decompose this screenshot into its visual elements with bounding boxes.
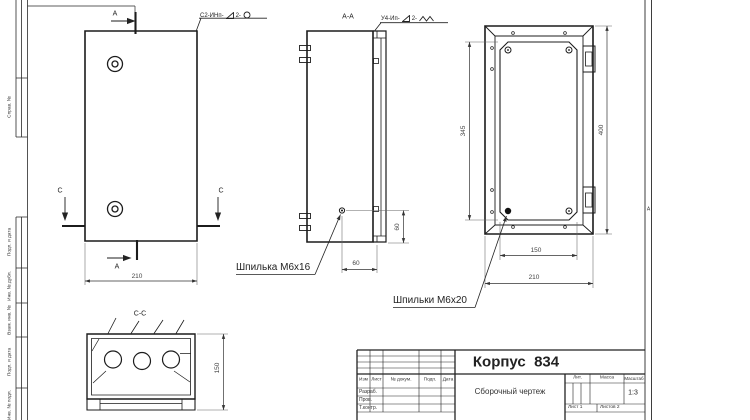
title-block-header-data: Дата <box>443 379 454 384</box>
dim-aa-offset-v-60: 60 <box>394 223 401 230</box>
weld-note-1: С2-ИНп- 2- <box>200 11 251 19</box>
weld-note-2-num: 2- <box>412 16 417 22</box>
section-arrow-lines <box>65 21 218 258</box>
front-view-holes <box>108 57 123 217</box>
section-mark-c-right: С <box>218 187 223 194</box>
title-block-mass-label: Масса <box>600 376 614 381</box>
frame-zone-letter: А <box>647 207 650 212</box>
section-cc-view <box>87 318 228 410</box>
front-view <box>62 12 221 285</box>
frame-holes <box>491 32 567 229</box>
annotation-studs-m6x20: Шпильки М6х20 <box>393 296 467 306</box>
section-mark-a-bottom: А <box>115 263 120 270</box>
margin-label-inv-dubl: Инв. № дубл. <box>8 271 13 301</box>
title-block-scale-value: 1:3 <box>628 390 638 397</box>
weld-note-1-text: С2-ИНп- <box>200 13 224 19</box>
dim-back-height-400: 400 <box>598 125 605 136</box>
weld-zigzag-icon <box>419 15 435 22</box>
weld-note-2-underline-leader <box>375 23 449 31</box>
section-aa-view <box>300 31 410 273</box>
weld-note-1-num: 2- <box>236 13 241 19</box>
dim-cc-depth-150: 150 <box>214 363 221 374</box>
annotation-stud-m6x16: Шпилька М6х16 <box>236 263 310 273</box>
margin-label-vzam-inv: Взам. инв. № <box>8 305 13 335</box>
weld-note-2-text: У4-Ип- <box>381 16 400 22</box>
drawing-sheet: Справ. № Подп. и дата Инв. № дубл. Взам.… <box>0 0 750 420</box>
weld-flag-icon <box>226 12 234 19</box>
dim-front-width-210: 210 <box>132 273 143 280</box>
dim-back-plate-height-345: 345 <box>461 126 468 137</box>
title-block-doc-type: Сборочный чертеж <box>475 388 546 396</box>
title-block-sheet: Лист 1 <box>568 406 582 411</box>
dim-back-plate-width-150: 150 <box>531 247 542 254</box>
drawing-linework <box>0 0 750 420</box>
cc-outer-outline <box>87 334 195 399</box>
section-cc-label: С-С <box>134 310 146 317</box>
title-block-lit-label: Лит. <box>573 376 582 381</box>
weld-circle-icon <box>243 11 251 19</box>
margin-label-podp-2: Подп. и дата <box>8 348 13 376</box>
stud-m6x20-filled <box>505 208 511 214</box>
cc-gland-holes <box>105 351 180 370</box>
aa-stud-sections <box>374 59 379 212</box>
weld-note-2: У4-Ип- 2- <box>381 15 435 22</box>
cc-base <box>87 399 195 410</box>
weld-note-1-underline-leader <box>196 18 267 31</box>
section-aa-label: А-А <box>342 13 354 20</box>
plate-screws <box>505 47 572 214</box>
title-block-row-prov: Пров. <box>359 398 372 403</box>
front-view-outline <box>85 31 197 241</box>
title-block-header-list: Лист <box>371 379 381 384</box>
margin-label-sprav: Справ. № <box>8 96 13 118</box>
stud-single-leader <box>315 215 341 275</box>
section-mark-c-left: С <box>57 187 62 194</box>
aa-left-tabs <box>300 46 311 231</box>
section-mark-a-top: А <box>113 11 118 18</box>
dim-aa-offset-h-60: 60 <box>352 260 359 267</box>
title-block-header-podp: Подп. <box>424 379 437 384</box>
margin-label-podp-1: Подп. и дата <box>8 228 13 256</box>
title-block-sheets: Листов 2 <box>600 406 620 411</box>
stud-multi-leader <box>475 216 507 308</box>
cc-inner-leaders <box>92 339 191 383</box>
title-block-title: Корпус 834 <box>473 355 559 370</box>
cc-base-detail <box>100 399 182 410</box>
cc-weld-ticks <box>108 318 184 334</box>
title-block-header-doc: № докум. <box>390 379 411 384</box>
mounting-plate <box>500 42 577 220</box>
dim-back-width-210: 210 <box>529 274 540 281</box>
top-left-aux-lines <box>28 6 136 18</box>
weld-flag-icon <box>402 15 410 22</box>
title-block-header-izm: Изм <box>359 379 368 384</box>
aa-ground-stud-dot <box>341 210 343 212</box>
title-block-row-tkontr: Т.контр. <box>359 406 377 411</box>
title-block-row-razrab: Разраб. <box>359 390 377 395</box>
margin-column-grid <box>16 0 28 420</box>
title-block-scale-label: Масштаб <box>624 376 643 381</box>
margin-label-inv-podl: Инв. № подл. <box>8 390 13 420</box>
